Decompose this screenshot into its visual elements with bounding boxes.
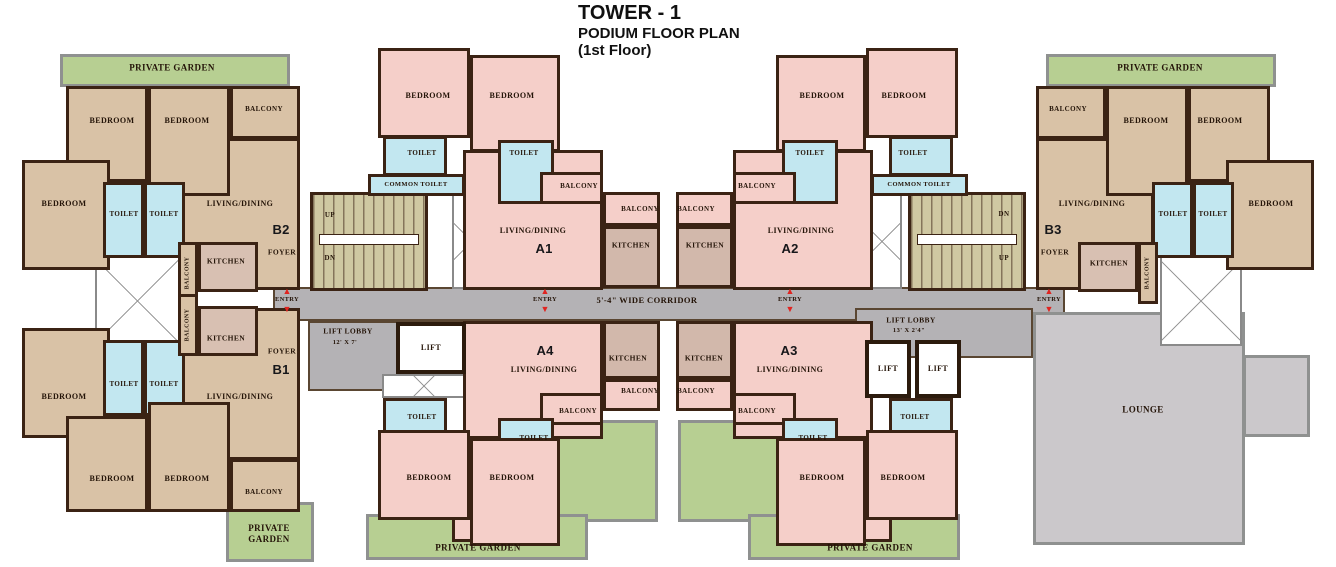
label-b1-bedroom-b: BEDROOM (164, 474, 209, 484)
label-b2-toilet-a: TOILET (109, 210, 138, 218)
label-stairs-left-up: UP (325, 211, 335, 219)
title-tower: TOWER - 1 (578, 2, 740, 25)
label-b3-balcony-top: BALCONY (1049, 105, 1087, 113)
label-a3-bedroom-b: BEDROOM (880, 473, 925, 483)
label-a3-kitchen: KITCHEN (685, 354, 723, 363)
label-a4-living: LIVING/DINING (511, 365, 578, 375)
label-a3-balcony-a: BALCONY (738, 407, 776, 415)
label-b1-balcony-v: BALCONY (184, 309, 191, 342)
label-lift-lobby-right-dim: 13' X 2'4" (893, 327, 925, 335)
label-a2-balcony-a: BALCONY (738, 182, 776, 190)
label-b3-balcony-v: BALCONY (1144, 257, 1151, 290)
label-a1-kitchen: KITCHEN (612, 241, 650, 250)
label-a2-bedroom-a: BEDROOM (799, 91, 844, 101)
label-a4-bedroom-a: BEDROOM (406, 473, 451, 483)
label-a1-unit: A1 (535, 241, 552, 257)
label-b1-foyer: FOYER (268, 347, 296, 356)
entry-arrow-down-icon: ▼ (283, 304, 292, 313)
title-floor: (1st Floor) (578, 42, 740, 59)
label-b3-garden: PRIVATE GARDEN (1117, 63, 1203, 74)
label-a4-bedroom-b: BEDROOM (489, 473, 534, 483)
label-b3-foyer: FOYER (1041, 248, 1069, 257)
label-a4-balcony-b: BALCONY (621, 387, 659, 395)
label-a4-garden: PRIVATE GARDEN (435, 543, 521, 554)
entry-arrow-down-icon: ▼ (1045, 304, 1054, 313)
label-a1-bedroom-b: BEDROOM (489, 91, 534, 101)
label-stairs-right-dn: DN (999, 210, 1010, 218)
entry-b3: ▲ENTRY▼ (1037, 287, 1061, 314)
label-a3-toilet-b: TOILET (900, 413, 929, 421)
label-b3-bedroom-c: BEDROOM (1248, 199, 1293, 209)
entry-arrow-down-icon: ▼ (541, 304, 550, 313)
label-a1-living: LIVING/DINING (500, 226, 567, 236)
label-a2-common-toilet: COMMON TOILET (887, 181, 950, 189)
label-a1-toilet-a: TOILET (407, 149, 436, 157)
label-b2-toilet-b: TOILET (149, 210, 178, 218)
label-corridor: 5'-4" WIDE CORRIDOR (597, 295, 698, 305)
entry-arrow-down-icon: ▼ (786, 304, 795, 313)
label-lift-right-1: LIFT (878, 364, 898, 374)
label-b2-garden: PRIVATE GARDEN (129, 63, 215, 74)
label-b1-bedroom-a: BEDROOM (89, 474, 134, 484)
label-a2-balcony-b: BALCONY (677, 205, 715, 213)
label-lift-right-2: LIFT (928, 364, 948, 374)
entry-label: ENTRY (778, 297, 802, 304)
label-a2-kitchen: KITCHEN (686, 241, 724, 250)
label-lift-left: LIFT (421, 343, 441, 353)
label-b1-garden: PRIVATE GARDEN (248, 523, 289, 545)
label-b3-bedroom-b: BEDROOM (1197, 116, 1242, 126)
label-b2-living: LIVING/DINING (207, 199, 274, 209)
label-b3-living: LIVING/DINING (1059, 199, 1126, 209)
label-a3-bedroom-a: BEDROOM (799, 473, 844, 483)
label-b2-balcony-top: BALCONY (245, 105, 283, 113)
label-b3-kitchen: KITCHEN (1090, 259, 1128, 268)
entry-label: ENTRY (533, 297, 557, 304)
label-a1-bedroom-a: BEDROOM (405, 91, 450, 101)
label-b1-balcony-bottom: BALCONY (245, 488, 283, 496)
label-a1-balcony-a: BALCONY (560, 182, 598, 190)
entry-label: ENTRY (1037, 297, 1061, 304)
label-b3-bedroom-a: BEDROOM (1123, 116, 1168, 126)
label-a2-living: LIVING/DINING (768, 226, 835, 236)
labels-layer: PRIVATE GARDENBEDROOMBEDROOMBALCONYBEDRO… (0, 0, 1336, 567)
label-a4-toilet-a: TOILET (407, 413, 436, 421)
label-a3-garden: PRIVATE GARDEN (827, 543, 913, 554)
entry-label: ENTRY (275, 297, 299, 304)
label-a2-unit: A2 (781, 241, 798, 257)
entry-a2-a3: ▲ENTRY▼ (778, 287, 802, 314)
label-b2-foyer: FOYER (268, 248, 296, 257)
entry-arrow-up-icon: ▲ (1045, 287, 1054, 296)
label-b2-unit: B2 (272, 222, 289, 238)
label-b2-balcony-v: BALCONY (184, 257, 191, 290)
plan-title: TOWER - 1 PODIUM FLOOR PLAN (1st Floor) (578, 2, 740, 60)
label-stairs-right-up: UP (999, 254, 1009, 262)
label-a1-common-toilet: COMMON TOILET (384, 181, 447, 189)
label-lounge: LOUNGE (1122, 405, 1163, 416)
label-b1-kitchen: KITCHEN (207, 334, 245, 343)
entry-a1-a4: ▲ENTRY▼ (533, 287, 557, 314)
label-b2-bedroom-c: BEDROOM (41, 199, 86, 209)
label-b1-toilet-a: TOILET (109, 380, 138, 388)
label-a4-balcony-a: BALCONY (559, 407, 597, 415)
entry-arrow-up-icon: ▲ (283, 287, 292, 296)
label-stairs-left-dn: DN (325, 254, 336, 262)
label-a1-toilet-b: TOILET (509, 149, 538, 157)
label-b1-unit: B1 (272, 362, 289, 378)
label-a2-toilet-a: TOILET (795, 149, 824, 157)
label-lift-lobby-left-dim: 12' X 7' (333, 339, 358, 347)
label-a4-toilet-b: TOILET (519, 434, 548, 442)
label-b3-toilet-b: TOILET (1198, 210, 1227, 218)
label-a3-balcony-b: BALCONY (677, 387, 715, 395)
label-b1-toilet-b: TOILET (149, 380, 178, 388)
label-lift-lobby-left: LIFT LOBBY (323, 327, 373, 336)
floor-plan: PRIVATE GARDENBEDROOMBEDROOMBALCONYBEDRO… (0, 0, 1336, 567)
label-a3-living: LIVING/DINING (757, 365, 824, 375)
title-plan-type: PODIUM FLOOR PLAN (578, 25, 740, 42)
label-a3-unit: A3 (780, 343, 797, 359)
label-b1-living: LIVING/DINING (207, 392, 274, 402)
label-b1-bedroom-c: BEDROOM (41, 392, 86, 402)
label-b3-unit: B3 (1044, 222, 1061, 238)
entry-arrow-up-icon: ▲ (541, 287, 550, 296)
label-b2-bedroom-b: BEDROOM (164, 116, 209, 126)
label-a2-toilet-b: TOILET (898, 149, 927, 157)
label-b2-kitchen: KITCHEN (207, 257, 245, 266)
entry-b-left: ▲ENTRY▼ (275, 287, 299, 314)
entry-arrow-up-icon: ▲ (786, 287, 795, 296)
label-a1-balcony-b: BALCONY (621, 205, 659, 213)
label-b2-bedroom-a: BEDROOM (89, 116, 134, 126)
label-a4-kitchen: KITCHEN (609, 354, 647, 363)
label-a3-toilet-a: TOILET (798, 434, 827, 442)
label-lift-lobby-right: LIFT LOBBY (886, 316, 936, 325)
label-b3-toilet-a: TOILET (1158, 210, 1187, 218)
label-a4-unit: A4 (536, 343, 553, 359)
label-a2-bedroom-b: BEDROOM (881, 91, 926, 101)
